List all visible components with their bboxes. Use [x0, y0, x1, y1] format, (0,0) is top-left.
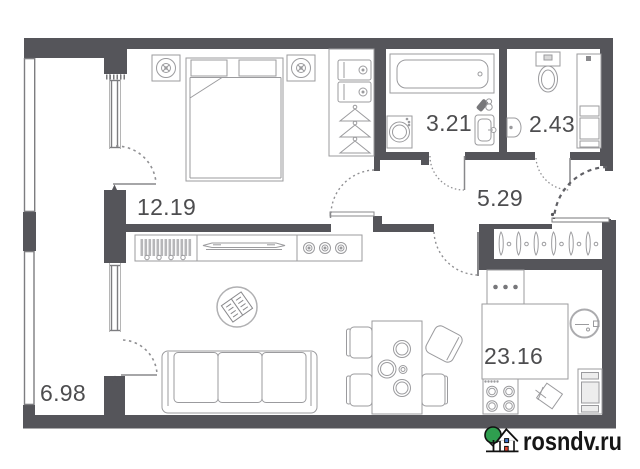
svg-text:5.29: 5.29: [477, 185, 523, 211]
svg-text:23.16: 23.16: [484, 343, 543, 369]
svg-text:2.43: 2.43: [529, 111, 575, 137]
svg-text:rosndv.ru: rosndv.ru: [523, 426, 622, 456]
svg-text:12.19: 12.19: [137, 194, 196, 220]
svg-text:3.21: 3.21: [426, 110, 472, 136]
svg-text:6.98: 6.98: [40, 380, 86, 406]
